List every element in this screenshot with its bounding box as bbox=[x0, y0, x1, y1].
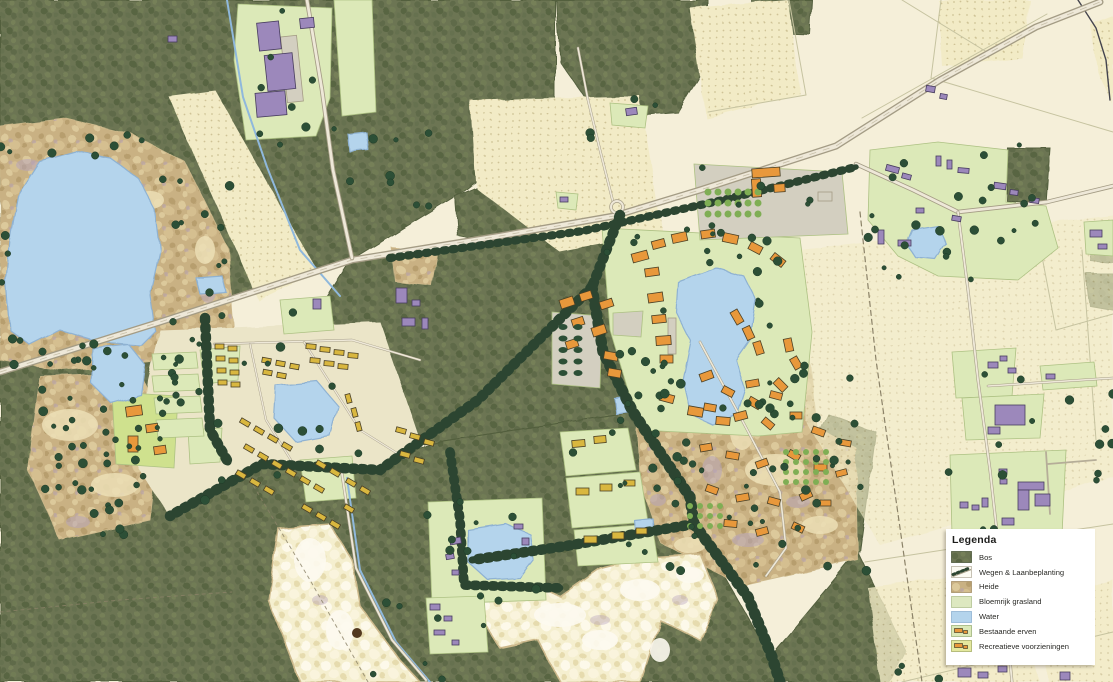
grasland-swatch-icon bbox=[951, 596, 972, 608]
legend-rows: BosWegen & LaanbeplantingHeideBloemrijk … bbox=[951, 550, 1090, 654]
legend-row-wegen: Wegen & Laanbeplanting bbox=[951, 565, 1090, 580]
water-swatch-icon bbox=[951, 611, 972, 623]
legend-row-recreatie: Recreatieve voorzieningen bbox=[951, 639, 1090, 654]
legend-label: Water bbox=[979, 612, 999, 621]
legend-label: Bestaande erven bbox=[979, 627, 1036, 636]
bos-swatch-icon bbox=[951, 551, 972, 563]
legend-row-grasland: Bloemrijk grasland bbox=[951, 594, 1090, 609]
recreatie-swatch-icon bbox=[951, 640, 972, 652]
legend-row-bos: Bos bbox=[951, 550, 1090, 565]
legend-row-water: Water bbox=[951, 609, 1090, 624]
dark-tree-dot bbox=[352, 628, 362, 638]
heide-swatch-icon bbox=[951, 581, 972, 593]
legend-label: Bos bbox=[979, 553, 992, 562]
legend-row-erven: Bestaande erven bbox=[951, 624, 1090, 639]
erven-swatch-icon bbox=[951, 625, 972, 637]
legend-label: Heide bbox=[979, 582, 999, 591]
legend-label: Bloemrijk grasland bbox=[979, 597, 1041, 606]
legend-label: Recreatieve voorzieningen bbox=[979, 642, 1069, 651]
wegen-swatch-icon bbox=[951, 566, 972, 578]
legend-title: Legenda bbox=[952, 534, 1090, 546]
landscape-plan-map: Legenda BosWegen & LaanbeplantingHeideBl… bbox=[0, 0, 1113, 682]
legend-row-heide: Heide bbox=[951, 580, 1090, 595]
legend: Legenda BosWegen & LaanbeplantingHeideBl… bbox=[946, 529, 1095, 665]
legend-label: Wegen & Laanbeplanting bbox=[979, 568, 1064, 577]
